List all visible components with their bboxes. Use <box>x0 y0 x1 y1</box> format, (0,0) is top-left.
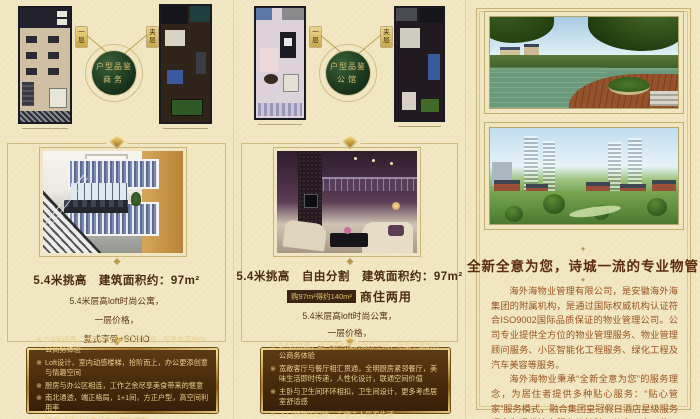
feature-item: ※Loft设计，室内动感楼梯，拾阶而上，办公更添创意与情趣空间 <box>36 358 209 379</box>
plan-label-level1: 一层 <box>310 27 321 47</box>
bullet-icon: ※ <box>36 358 42 379</box>
plan-label-mezzanine: 夹层 <box>381 27 392 47</box>
spec-heading: 5.4米挑高 自由分割 建筑面积约：97m² <box>234 268 465 284</box>
floorplan-area-mansion: 一层 夹层 户型品鉴 公馆 <box>234 0 465 140</box>
panel-business: 一层 夹层 户型品鉴 商务 <box>0 0 233 419</box>
service-title: 全新全意为您，诗城一流的专业物管 <box>466 255 700 275</box>
feature-item: ※南北通透，端正格局，1+1间，方正户型，高空间利用率 <box>36 393 209 414</box>
round-planter <box>608 77 650 95</box>
spec-line: 一层价格， <box>234 326 465 339</box>
badge-mansion: 户型品鉴 公馆 <box>326 51 370 95</box>
ceiling-lights <box>354 157 357 160</box>
photo-frame <box>484 11 684 114</box>
promo-text: 商住两用 <box>360 288 412 305</box>
tree-canopy <box>588 16 679 51</box>
park-tree <box>505 206 523 222</box>
feature-item: ※宽敞客厅与餐厅相汇贯通，全明厨房紧邻餐厅，美味生活即时传递，人性化设计，联通空… <box>270 364 441 385</box>
photo-frame <box>39 147 187 257</box>
promo-row: 购97m²得约140m² 商住两用 <box>234 288 465 305</box>
floorplan-mansion-level1 <box>254 6 306 120</box>
plan-label-level1: 一层 <box>76 27 87 47</box>
spec-heading: 5.4米挑高 建筑面积约：97m² <box>0 272 233 288</box>
flowers <box>344 227 351 234</box>
mezzanine-railing <box>305 177 417 191</box>
promo-badge: 购97m²得约140m² <box>287 290 356 303</box>
badge-title: 户型品鉴 <box>96 61 132 72</box>
photo-office-interior <box>43 151 183 253</box>
feature-item: ※入户鞋柜的设计，方便主人居家生活 <box>270 410 441 419</box>
bullet-icon: ※ <box>270 410 276 419</box>
feature-item: ※主卧与卫生间环环相扣，卫生间设计，更多考虑居室舒适感 <box>270 387 441 408</box>
badge-title: 户型品鉴 <box>330 61 366 72</box>
sofa <box>283 220 328 251</box>
floorplan-business-mezzanine <box>159 4 212 124</box>
bullet-icon: ※ <box>36 393 42 414</box>
badge-subtitle: 商务 <box>103 74 125 85</box>
spec-line: 一层价格， <box>0 313 233 326</box>
feature-box-mansion: ※5.4米挑高，动与静构成的双层空间，尽享丰富的办公商务体验 ※宽敞客厅与餐厅相… <box>261 348 450 413</box>
plan-label-mezzanine: 夹层 <box>147 27 158 47</box>
diamond-ornament-icon: ◆ <box>466 278 700 283</box>
diamond-ornament-icon: ◆ <box>466 247 700 252</box>
spec-line: 5.4米层高loft时尚公寓， <box>234 309 465 322</box>
badge-business: 户型品鉴 商务 <box>92 51 136 95</box>
diamond-ornament-icon <box>339 136 360 147</box>
spec-line: 5.4米层高loft时尚公寓， <box>0 294 233 307</box>
photo-frame <box>484 122 684 230</box>
feature-item: ※5.4米挑高，动与静构成的双层空间，尽享丰富的办公商务体验 <box>270 341 441 362</box>
panel-service: ◆ 全新全意为您，诗城一流的专业物管 ◆ 海外海物业管理有限公司，是安徽海外海集… <box>466 0 700 419</box>
photo-loft-interior <box>277 151 417 253</box>
floorplan-mansion-mezzanine <box>394 6 445 122</box>
feature-item: ※5.4米挑高，动与静构成的双层空间，尽享丰富的办公商务体验 <box>36 335 209 356</box>
floorplan-area-business: 一层 夹层 户型品鉴 商务 <box>0 0 233 140</box>
photo-community-aerial <box>489 127 679 225</box>
photo-lakeside-landscape <box>489 16 679 109</box>
tree-canopy <box>489 16 554 43</box>
photo-frame <box>273 147 421 257</box>
bullet-icon: ※ <box>270 387 276 408</box>
bullet-icon: ※ <box>36 335 42 356</box>
service-title-block: ◆ 全新全意为您，诗城一流的专业物管 ◆ <box>466 247 700 283</box>
bullet-icon: ※ <box>270 341 276 362</box>
park-tree <box>647 198 667 216</box>
tv-screen <box>304 194 319 208</box>
bullet-icon: ※ <box>36 381 42 391</box>
plant <box>131 192 141 206</box>
floor-lamp <box>392 202 400 210</box>
feature-box-business: ※5.4米挑高，动与静构成的双层空间，尽享丰富的办公商务体验 ※Loft设计，室… <box>27 348 218 413</box>
brochure-page: 一层 夹层 户型品鉴 商务 <box>0 0 700 419</box>
panel-mansion: 一层 夹层 户型品鉴 公馆 <box>233 0 466 419</box>
service-body-text: 海外海物业管理有限公司，是安徽海外海集团的附属机构，是通过国际权威机构认证符合I… <box>491 284 678 419</box>
bullet-icon: ※ <box>270 364 276 385</box>
badge-subtitle: 公馆 <box>337 74 359 85</box>
park-tree <box>543 194 565 214</box>
floorplan-business-level1 <box>18 6 72 124</box>
stone-steps <box>650 91 678 106</box>
diamond-ornament-icon <box>106 136 127 147</box>
service-paragraph: 海外海物业秉承“全新全意为您”的服务理念，为居住者提供多种贴心服务：“贴心管家”… <box>491 372 678 419</box>
cushion <box>388 225 405 235</box>
feature-item: ※厨房与办公区相连，工作之余尽享美食带来的惬意 <box>36 381 209 391</box>
coffee-table <box>330 233 368 247</box>
service-paragraph: 海外海物业管理有限公司，是安徽海外海集团的附属机构，是通过国际权威机构认证符合I… <box>491 284 678 372</box>
feature-column <box>298 151 322 233</box>
